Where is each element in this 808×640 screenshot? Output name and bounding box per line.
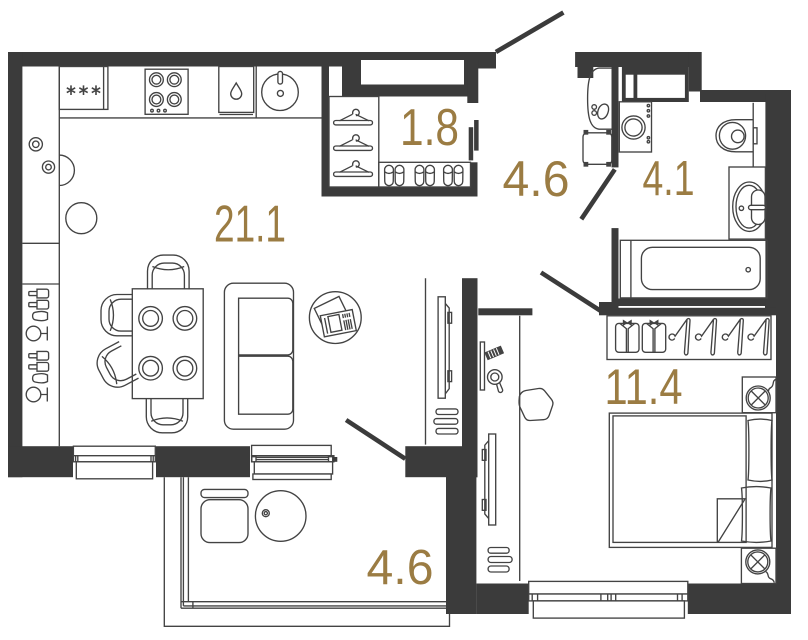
svg-text:21.1: 21.1: [214, 195, 286, 253]
svg-text:4.6: 4.6: [367, 541, 434, 595]
svg-text:11.4: 11.4: [605, 359, 683, 415]
svg-text:4.6: 4.6: [503, 151, 570, 207]
svg-text:1.8: 1.8: [400, 99, 459, 157]
svg-text:4.1: 4.1: [643, 152, 695, 206]
